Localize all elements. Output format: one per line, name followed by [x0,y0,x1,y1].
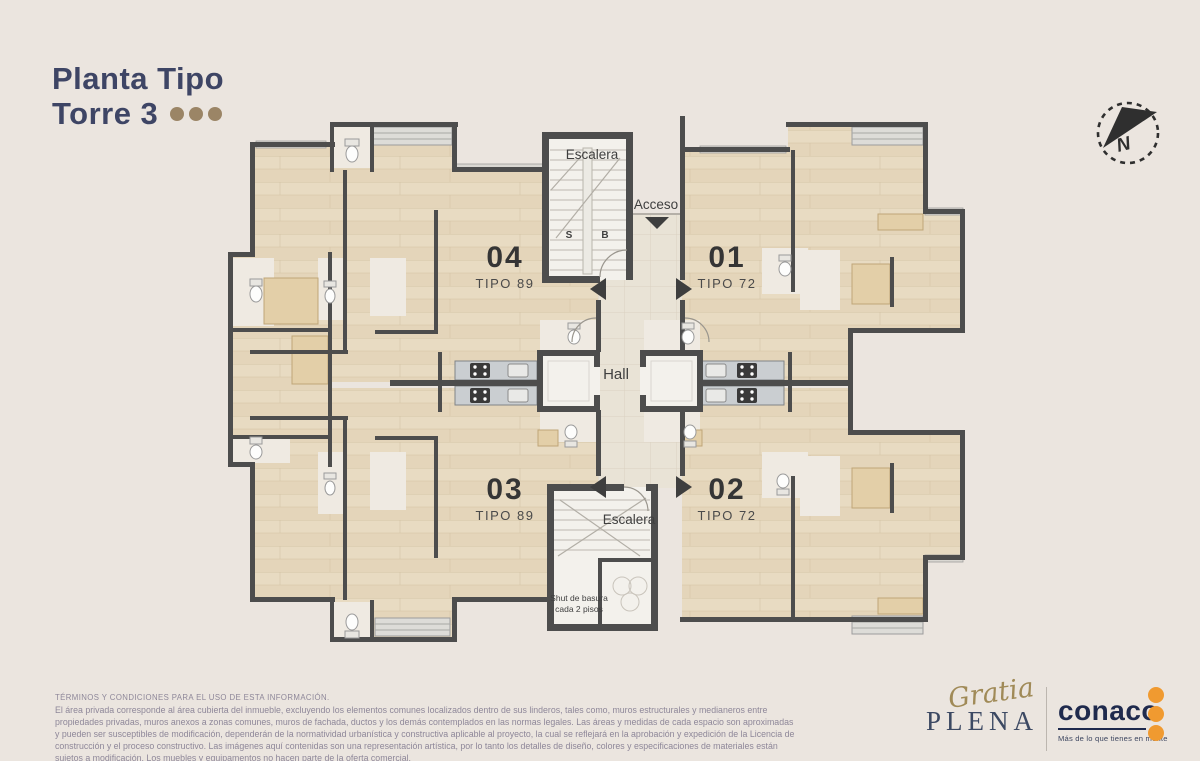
terms-title: TÉRMINOS Y CONDICIONES PARA EL USO DE ES… [55,693,797,702]
stair-up-label: S [562,230,576,241]
access-label: Acceso [628,197,684,212]
stair-top-label: Escalera [544,147,640,162]
terms-and-conditions: TÉRMINOS Y CONDICIONES PARA EL USO DE ES… [55,693,797,761]
compass-north-icon: N [1091,96,1165,170]
unit-01-number: 01 [677,243,777,273]
unit-04-type: TIPO 89 [455,276,555,291]
page: Planta Tipo Torre 3 N [0,0,1200,761]
hall-label: Hall [588,366,644,383]
svg-text:N: N [1114,133,1134,157]
unit-02-type: TIPO 72 [677,508,777,523]
stair-down-label: B [598,230,612,241]
unit-04-label: 04 TIPO 89 [455,243,555,291]
unit-01-label: 01 TIPO 72 [677,243,777,291]
unit-03-type: TIPO 89 [455,508,555,523]
unit-03-number: 03 [455,475,555,505]
trash-chute-label: Shut de basura cada 2 pisos [548,593,610,614]
conaco-rule [1058,728,1146,730]
gratia-plena-logo: Gratia PLENA [926,684,1044,752]
unit-04-number: 04 [455,243,555,273]
unit-02-label: 02 TIPO 72 [677,475,777,523]
title-dots-decoration [170,107,222,121]
page-title: Planta Tipo Torre 3 [52,62,224,132]
page-title-line2: Torre 3 [52,96,158,132]
unit-01-type: TIPO 72 [677,276,777,291]
gratia-plena-name: PLENA [926,706,1038,737]
page-title-line1: Planta Tipo [52,62,224,96]
unit-03-label: 03 TIPO 89 [455,475,555,523]
conaco-dots-icon [1148,687,1164,741]
elevator-right [640,350,703,412]
unit-02-number: 02 [677,475,777,505]
terms-body: El área privada corresponde al área cubi… [55,705,797,761]
logo-divider [1046,687,1047,751]
stair-bottom-label: Escalera [581,512,677,527]
